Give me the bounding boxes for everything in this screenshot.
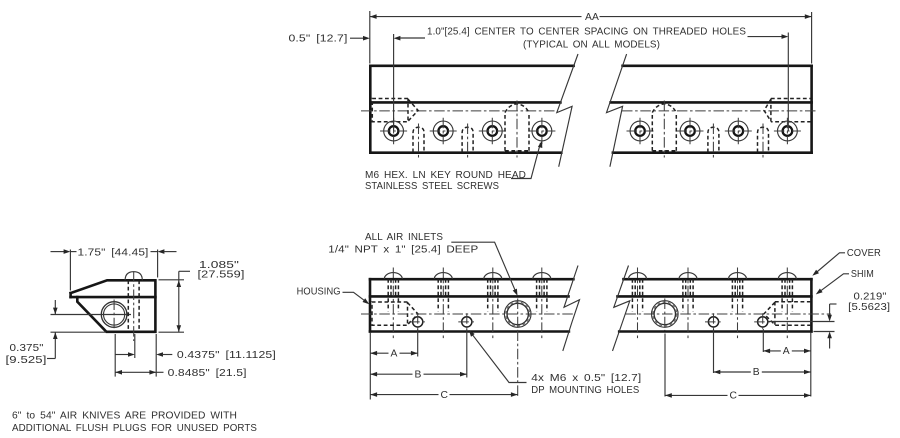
svg-text:ALL AIR INLETS: ALL AIR INLETS [365, 232, 443, 243]
svg-text:A: A [783, 346, 790, 357]
svg-text:1/4" NPT x 1" [25.4] DEEP: 1/4" NPT x 1" [25.4] DEEP [328, 245, 478, 256]
svg-text:(TYPICAL ON ALL MODELS): (TYPICAL ON ALL MODELS) [523, 39, 660, 50]
svg-text:1.75" [44.45]: 1.75" [44.45] [78, 247, 149, 258]
svg-text:M6 HEX. LN KEY ROUND HEAD: M6 HEX. LN KEY ROUND HEAD [365, 170, 526, 181]
svg-text:A: A [391, 348, 398, 359]
svg-text:0.375": 0.375" [10, 343, 44, 354]
svg-text:C: C [441, 390, 449, 401]
svg-text:B: B [415, 369, 422, 380]
svg-text:[9.525]: [9.525] [6, 355, 47, 366]
svg-text:DP MOUNTING HOLES: DP MOUNTING HOLES [531, 385, 639, 396]
svg-text:6" to 54" AIR KNIVES ARE PROVI: 6" to 54" AIR KNIVES ARE PROVIDED WITH [12, 410, 237, 421]
svg-text:STAINLESS STEEL SCREWS: STAINLESS STEEL SCREWS [365, 181, 499, 192]
svg-text:ADDITIONAL FLUSH PLUGS FOR UNU: ADDITIONAL FLUSH PLUGS FOR UNUSED PORTS [12, 423, 257, 434]
svg-text:AA: AA [585, 12, 599, 23]
svg-text:0.5" [12.7]: 0.5" [12.7] [289, 34, 348, 45]
svg-text:COVER: COVER [847, 248, 881, 259]
svg-text:C: C [730, 391, 738, 402]
svg-text:0.219": 0.219" [854, 292, 887, 303]
svg-text:SHIM: SHIM [851, 269, 874, 280]
svg-text:4x M6 x 0.5" [12.7]: 4x M6 x 0.5" [12.7] [531, 373, 641, 384]
svg-text:B: B [753, 367, 760, 378]
svg-text:[5.5623]: [5.5623] [848, 302, 890, 313]
svg-text:HOUSING: HOUSING [297, 286, 341, 297]
svg-text:0.8485" [21.5]: 0.8485" [21.5] [168, 368, 247, 379]
svg-text:0.4375" [11.1125]: 0.4375" [11.1125] [177, 350, 276, 361]
svg-text:[27.559]: [27.559] [198, 270, 245, 281]
svg-text:1.0"[25.4] CENTER TO CENTER SP: 1.0"[25.4] CENTER TO CENTER SPACING ON T… [427, 26, 746, 37]
